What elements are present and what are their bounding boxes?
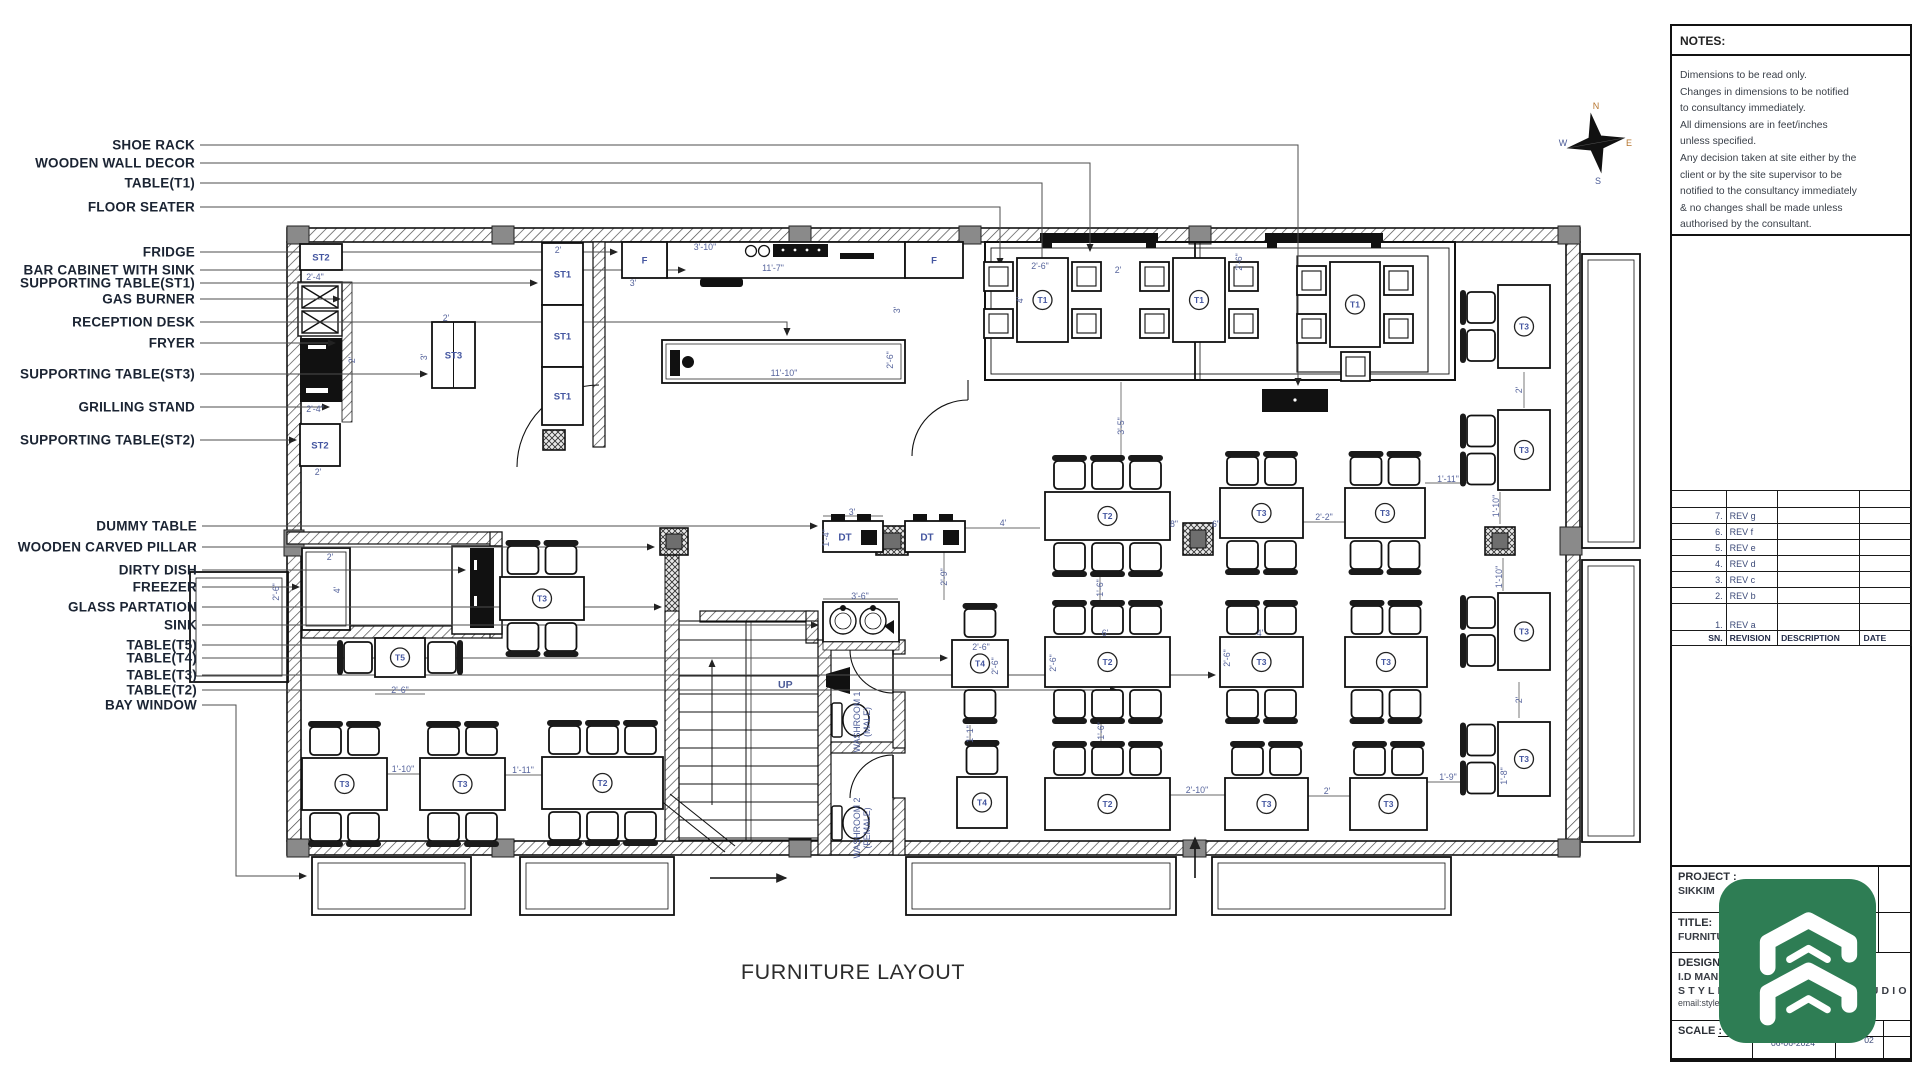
- rev-sn: 4.: [1671, 556, 1727, 572]
- dimension-label: 2'-4": [306, 272, 324, 282]
- svg-text:DT: DT: [920, 533, 933, 544]
- note-line: unless specified.: [1680, 134, 1904, 151]
- rev-desc: [1778, 491, 1860, 508]
- dimension-label: 1'-9": [1439, 772, 1457, 782]
- counter-top: [700, 278, 743, 287]
- svg-text:T1: T1: [1194, 295, 1204, 305]
- washroom2-label: WASHROOM 2(FEMALE): [852, 798, 872, 859]
- svg-text:T3: T3: [1519, 445, 1529, 455]
- dimension-label: 11'-7": [762, 263, 784, 273]
- dimension-label: 4': [1015, 296, 1025, 303]
- svg-text:T3: T3: [1262, 799, 1272, 809]
- svg-text:T3: T3: [1257, 657, 1267, 667]
- svg-text:SINK: SINK: [164, 618, 197, 633]
- svg-text:T1: T1: [1038, 295, 1048, 305]
- callout-bay-window: BAY WINDOW: [105, 698, 306, 877]
- rev-sn: 1.: [1671, 604, 1727, 631]
- table-t3: T3: [1220, 451, 1303, 575]
- rev-sn: 3.: [1671, 572, 1727, 588]
- table-t3: T3: [1460, 285, 1550, 368]
- dirty-dish-unit: [452, 546, 502, 634]
- svg-text:SUPPORTING TABLE(ST1): SUPPORTING TABLE(ST1): [20, 276, 195, 291]
- dimension-label: 2': [1324, 786, 1331, 796]
- svg-text:ST1: ST1: [554, 332, 572, 343]
- furniture-layout-sheet: { "sheet": { "drawing_title": "FURNITURE…: [0, 0, 1920, 1080]
- svg-text:T3: T3: [537, 594, 547, 604]
- studio-logo: [1719, 879, 1876, 1043]
- rev-footer-sn: SN.: [1671, 631, 1727, 646]
- table-t3: T3: [1220, 600, 1303, 724]
- svg-text:ST1: ST1: [554, 392, 572, 403]
- svg-text:T1: T1: [1350, 300, 1360, 310]
- compass-letter: S: [1595, 176, 1601, 186]
- note-line: Any decision taken at site either by the: [1680, 151, 1904, 168]
- divider: [1878, 867, 1879, 912]
- callout-supporting-table-st2: SUPPORTING TABLE(ST2): [20, 433, 296, 448]
- dimension-label: 1'-6": [1095, 579, 1105, 597]
- rev-name: REV d: [1726, 556, 1777, 572]
- dimension-label: 6": [1212, 519, 1220, 529]
- note-line: authorised by the consultant.: [1680, 217, 1904, 234]
- note-line: Dimensions to be read only.: [1680, 68, 1904, 85]
- compass-letter: E: [1626, 138, 1632, 148]
- svg-text:T5: T5: [395, 653, 405, 663]
- rev-desc: [1778, 524, 1860, 540]
- dimension-label: 2': [555, 245, 562, 255]
- dimension-label: 3'-5": [1116, 417, 1126, 435]
- dimension-label: 2'-6": [990, 657, 1000, 675]
- dimension-label: 3': [630, 278, 637, 288]
- svg-text:TABLE(T3): TABLE(T3): [126, 668, 197, 683]
- dimension-label: 2': [327, 552, 334, 562]
- table-t3: T3: [1345, 451, 1425, 575]
- bay-window-bottom-4: [1212, 857, 1451, 915]
- dimension-label: 3': [849, 507, 856, 517]
- compass-letter: W: [1559, 138, 1568, 148]
- dimension-label: 1'-10": [392, 764, 414, 774]
- svg-text:FRYER: FRYER: [149, 336, 195, 351]
- table-t2: T2: [542, 720, 663, 846]
- floor-plan-drawing: NESW SHOE RACKWOODEN WALL DECORTABLE(T1)…: [0, 0, 1920, 1080]
- dimension-label: 2'-2": [1315, 512, 1333, 522]
- table-t2: T2: [1045, 455, 1170, 577]
- rev-sn: 5.: [1671, 540, 1727, 556]
- dimension-label: 4': [1000, 518, 1007, 528]
- dimension-label: 2'-6": [1031, 261, 1049, 271]
- dimension-label: 2'-6": [271, 583, 281, 601]
- svg-text:WOODEN CARVED PILLAR: WOODEN CARVED PILLAR: [18, 540, 197, 555]
- drawing-title: FURNITURE LAYOUT: [603, 960, 1103, 985]
- platform-door-arc: [912, 400, 968, 456]
- bay-window-bottom-2: [520, 857, 674, 915]
- rev-footer-revision: REVISION: [1726, 631, 1777, 646]
- rev-footer-date: DATE: [1860, 631, 1912, 646]
- svg-text:TABLE(T4): TABLE(T4): [126, 651, 197, 666]
- table-dt: DT: [823, 514, 883, 552]
- rev-name: REV g: [1726, 508, 1777, 524]
- gas-burner: [298, 282, 342, 336]
- svg-text:T4: T4: [975, 659, 985, 669]
- callout-dummy-table: DUMMY TABLE: [96, 519, 817, 534]
- svg-text:FLOOR SEATER: FLOOR SEATER: [88, 200, 195, 215]
- callout-supporting-table-st3: SUPPORTING TABLE(ST3): [20, 367, 427, 382]
- svg-text:DUMMY TABLE: DUMMY TABLE: [96, 519, 197, 534]
- revision-table: 7.REV g6.REV f5.REV e4.REV d3.REV c2.REV…: [1670, 490, 1912, 646]
- rev-date: [1860, 604, 1912, 631]
- rev-sn: 2.: [1671, 588, 1727, 604]
- svg-text:T2: T2: [598, 778, 608, 788]
- staircase: [660, 621, 818, 852]
- dimension-label: 2': [315, 467, 322, 477]
- note-line: Changes in dimensions to be notified: [1680, 85, 1904, 102]
- svg-text:T2: T2: [1103, 657, 1113, 667]
- svg-text:T4: T4: [977, 798, 987, 808]
- rev-name: [1726, 491, 1777, 508]
- rev-date: [1860, 572, 1912, 588]
- door-arcs: [517, 380, 968, 467]
- table-f: F: [905, 242, 963, 278]
- table-st3: ST3: [432, 322, 475, 388]
- dimension-label: 2': [443, 313, 450, 323]
- dimension-label: 2': [1115, 265, 1122, 275]
- svg-text:F: F: [642, 256, 648, 267]
- svg-text:TABLE(T1): TABLE(T1): [124, 176, 195, 191]
- table-t2: T2: [1045, 600, 1170, 724]
- rev-desc: [1778, 556, 1860, 572]
- svg-text:ST2: ST2: [312, 253, 329, 264]
- dimension-label: 2'-9": [939, 568, 949, 586]
- table-st2: ST2: [300, 424, 340, 466]
- svg-text:SUPPORTING TABLE(ST2): SUPPORTING TABLE(ST2): [20, 433, 195, 448]
- bay-window-bottom-3: [906, 857, 1176, 915]
- svg-text:GAS BURNER: GAS BURNER: [102, 292, 195, 307]
- dimension-label: 1'-8": [1499, 767, 1509, 785]
- table-t3: T3: [500, 540, 584, 657]
- rev-date: [1860, 540, 1912, 556]
- bay-window-bottom-1: [312, 857, 471, 915]
- washroom1-door-arc: [850, 650, 893, 693]
- dimension-label: 1'-11": [512, 765, 534, 775]
- svg-text:RECEPTION DESK: RECEPTION DESK: [72, 315, 195, 330]
- svg-text:BAY WINDOW: BAY WINDOW: [105, 698, 197, 713]
- dimension-label: 3'-6": [851, 591, 869, 601]
- svg-text:T3: T3: [1257, 508, 1267, 518]
- dimension-label: 2'-6": [885, 351, 895, 369]
- compass-rose: [1563, 110, 1628, 177]
- svg-text:TABLE(T2): TABLE(T2): [126, 683, 197, 698]
- note-line: & no changes shall be made unless: [1680, 201, 1904, 218]
- rev-sn: [1671, 491, 1727, 508]
- dimension-label: 2'-6": [972, 642, 990, 652]
- callout-reception-desk: RECEPTION DESK: [72, 315, 787, 336]
- rev-sn: 7.: [1671, 508, 1727, 524]
- svg-text:DIRTY DISH: DIRTY DISH: [119, 563, 197, 578]
- dimension-label: 3': [419, 353, 429, 360]
- svg-text:T3: T3: [340, 779, 350, 789]
- dimension-label: 2': [1514, 386, 1524, 393]
- svg-text:T3: T3: [1519, 627, 1529, 637]
- dimension-label: 3': [892, 306, 902, 313]
- table-t3: T3: [1225, 741, 1308, 830]
- rev-desc: [1778, 572, 1860, 588]
- rev-date: [1860, 556, 1912, 572]
- svg-text:T3: T3: [1519, 322, 1529, 332]
- washroom2-door-arc: [850, 755, 893, 798]
- table-t3: T3: [1345, 600, 1427, 724]
- table-t1: T1: [1297, 262, 1413, 381]
- dimension-label: 2'-6": [1222, 649, 1232, 667]
- divider: [1878, 913, 1879, 952]
- svg-text:T2: T2: [1103, 799, 1113, 809]
- rev-name: REV b: [1726, 588, 1777, 604]
- dimension-label: 1'-1": [965, 725, 975, 743]
- table-st1: ST1: [542, 367, 583, 425]
- table-st2: ST2: [300, 244, 342, 270]
- dimension-label: 3'-10": [694, 242, 716, 252]
- dimension-label: 1'-4": [821, 529, 831, 547]
- compass-letter: N: [1593, 101, 1600, 111]
- svg-text:FREEZER: FREEZER: [133, 580, 197, 595]
- svg-text:ST1: ST1: [554, 270, 572, 281]
- table-t2: T2: [1045, 741, 1170, 830]
- rev-name: REV c: [1726, 572, 1777, 588]
- dimension-label: 6': [1102, 628, 1109, 638]
- bay-window-right-2: [1582, 560, 1640, 842]
- svg-text:T3: T3: [1384, 799, 1394, 809]
- svg-text:GRILLING STAND: GRILLING STAND: [78, 400, 195, 415]
- shoe-rack: [1262, 389, 1328, 412]
- svg-text:T3: T3: [1380, 508, 1390, 518]
- svg-text:F: F: [931, 256, 937, 267]
- table-st1: ST1: [542, 305, 583, 367]
- kitchen-sink: [823, 602, 899, 650]
- dimension-label: 2': [1514, 696, 1524, 703]
- callout-supporting-table-st1: SUPPORTING TABLE(ST1): [20, 276, 537, 291]
- rev-date: [1860, 524, 1912, 540]
- notes-body: Dimensions to be read only.Changes in di…: [1672, 58, 1910, 236]
- dimension-label: 11'-10": [771, 368, 798, 378]
- dimension-label: 2': [347, 356, 357, 363]
- dimension-label: 2'-4": [306, 404, 324, 414]
- fryer: [300, 338, 342, 402]
- rev-name: REV e: [1726, 540, 1777, 556]
- dimension-label: 1'-6": [1096, 722, 1106, 740]
- table-t4: T4: [957, 740, 1007, 828]
- svg-text:ST2: ST2: [311, 441, 328, 452]
- notes-header: NOTES:: [1672, 26, 1910, 56]
- rev-desc: [1778, 540, 1860, 556]
- svg-text:SUPPORTING TABLE(ST3): SUPPORTING TABLE(ST3): [20, 367, 195, 382]
- rev-footer-description: DESCRIPTION: [1778, 631, 1860, 646]
- stairs-up-label: UP: [778, 679, 793, 691]
- dimension-label: 4': [1257, 628, 1264, 638]
- svg-text:SHOE RACK: SHOE RACK: [112, 138, 195, 153]
- dimension-label: 2'-6": [1048, 654, 1058, 672]
- grilling-stand: [342, 282, 352, 422]
- svg-text:T2: T2: [1103, 511, 1113, 521]
- dimension-label: 8": [1170, 519, 1178, 529]
- dimension-label: 4': [332, 586, 342, 593]
- dimension-label: 2'-6": [391, 685, 409, 695]
- svg-text:ST3: ST3: [445, 351, 462, 362]
- dimension-label: 1'-10": [1494, 566, 1504, 588]
- note-line: All dimensions are in feet/inches: [1680, 118, 1904, 135]
- table-t3: T3: [1460, 410, 1550, 490]
- svg-text:GLASS PARTATION: GLASS PARTATION: [68, 600, 197, 615]
- rev-sn: 6.: [1671, 524, 1727, 540]
- rev-date: [1860, 588, 1912, 604]
- dimension-label: 1'-11": [1437, 474, 1459, 484]
- table-st1: ST1: [542, 243, 583, 305]
- svg-text:WOODEN WALL DECOR: WOODEN WALL DECOR: [35, 156, 195, 171]
- table-t3: T3: [420, 721, 505, 847]
- rev-date: [1860, 508, 1912, 524]
- rev-desc: [1778, 604, 1860, 631]
- svg-text:T3: T3: [1381, 657, 1391, 667]
- glass-partition: [665, 553, 679, 611]
- bay-window-right-1: [1582, 254, 1640, 548]
- note-line: notified to the consultancy immediately: [1680, 184, 1904, 201]
- svg-text:T3: T3: [458, 779, 468, 789]
- studio-logo-mark: [1719, 879, 1876, 1043]
- dimension-label: 2'-6": [1234, 253, 1244, 271]
- table-t3: T3: [1350, 741, 1427, 830]
- dimension-label: 1'-10": [1491, 495, 1501, 517]
- table-t3: T3: [302, 721, 387, 847]
- note-line: to consultancy immediately.: [1680, 101, 1904, 118]
- rev-name: REV a: [1726, 604, 1777, 631]
- table-t5: T5: [337, 638, 463, 677]
- note-line: client or by the site supervisor to be: [1680, 168, 1904, 185]
- rev-desc: [1778, 508, 1860, 524]
- rev-name: REV f: [1726, 524, 1777, 540]
- table-dt: DT: [905, 514, 965, 552]
- table-f: F: [622, 242, 667, 278]
- svg-text:T3: T3: [1519, 754, 1529, 764]
- rev-date: [1860, 491, 1912, 508]
- svg-text:FRIDGE: FRIDGE: [143, 245, 195, 260]
- dimension-label: 2'-10": [1186, 785, 1208, 795]
- table-t3: T3: [1460, 593, 1550, 670]
- rev-desc: [1778, 588, 1860, 604]
- svg-text:DT: DT: [838, 533, 851, 544]
